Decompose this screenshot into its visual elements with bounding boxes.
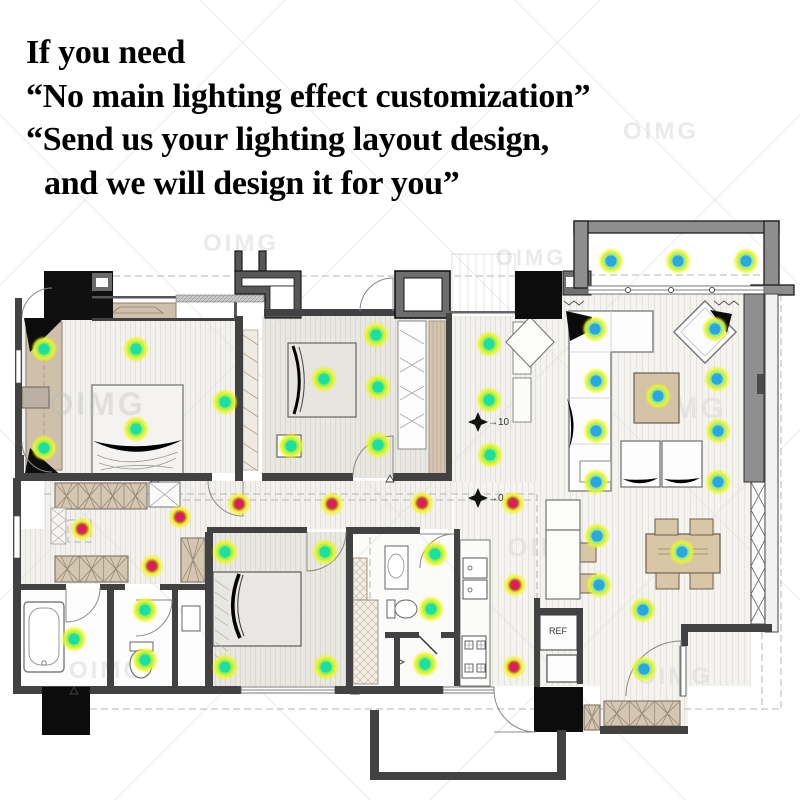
svg-text:OIMG: OIMG xyxy=(496,245,567,270)
svg-text:OIMG: OIMG xyxy=(48,386,145,422)
svg-text:OIMG: OIMG xyxy=(623,118,699,145)
svg-text:REF: REF xyxy=(549,626,568,636)
svg-text:→0: →0 xyxy=(488,493,504,504)
svg-text:→10: →10 xyxy=(488,417,510,428)
